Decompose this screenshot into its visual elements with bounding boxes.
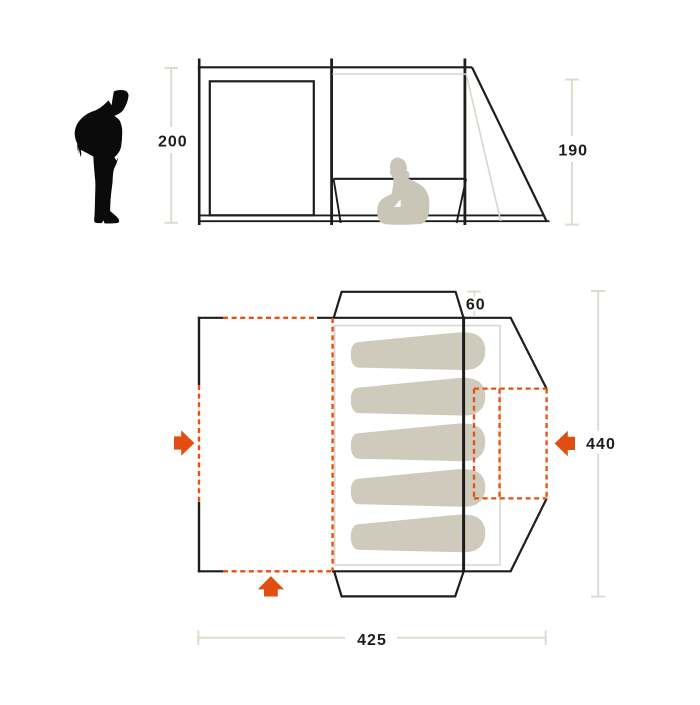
- svg-text:425: 425: [357, 632, 387, 649]
- svg-text:200: 200: [158, 133, 188, 150]
- svg-text:60: 60: [466, 297, 486, 314]
- svg-text:440: 440: [586, 436, 616, 453]
- svg-text:190: 190: [558, 143, 588, 160]
